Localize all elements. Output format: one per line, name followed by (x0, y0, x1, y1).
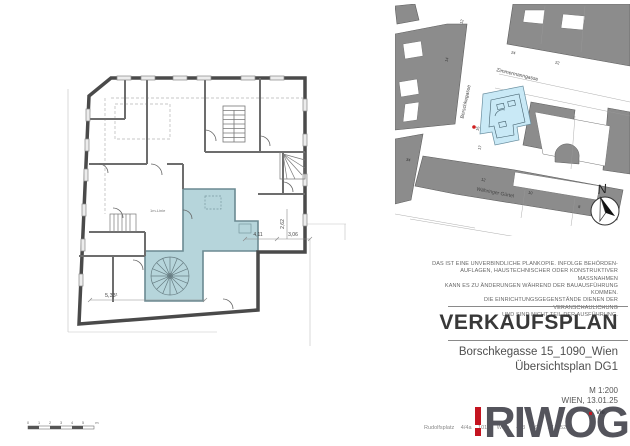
logo-fragment: Vie (596, 410, 605, 416)
plan-name: Übersichtsplan DG1 (438, 361, 618, 373)
site-plan: Borschkegasse Zimmermanngasse Währinger … (395, 4, 630, 236)
street-label-borschkegasse: Borschkegasse (460, 84, 473, 119)
disclaimer-line: DIE EINRICHTUNGSGEGENSTÄNDE DIENEN DER V… (430, 297, 618, 312)
svg-text:17: 17 (477, 144, 483, 150)
street-label-zimmermanngasse: Zimmermanngasse (496, 67, 539, 83)
address-line: Borschkegasse 15_1090_Wien (438, 346, 618, 358)
plan-sheet: 5,33¹ 4,11 3,06 2,62 1m-Linie 0 1 2 3 4 … (0, 0, 630, 446)
svg-text:1: 1 (38, 421, 40, 425)
divider-bottom (448, 340, 628, 341)
svg-text:12: 12 (459, 18, 465, 24)
scale-bar-unit: m (95, 421, 98, 425)
dim-label-262: 2,62 (280, 219, 286, 229)
disclaimer-line: KANN ES ZU ÄNDERUNGEN WÄHREND DER BAUAUS… (430, 283, 618, 298)
spiral-stair (151, 257, 189, 295)
scale-label: M 1:200 (438, 386, 618, 395)
north-label: N (596, 181, 608, 197)
svg-text:2: 2 (49, 421, 51, 425)
straight-stair (223, 106, 245, 142)
scale-bar: 0 1 2 3 4 5 m (27, 419, 103, 432)
divider-top (448, 306, 628, 307)
floor-plan: 5,33¹ 4,11 3,06 2,62 1m-Linie (55, 64, 355, 354)
logo-fragment-square (589, 412, 592, 415)
dim-label-533: 5,33¹ (105, 293, 118, 299)
disclaimer-line: DAS IST EINE UNVERBINDLICHE PLANKOPIE. I… (430, 261, 618, 268)
page-title: VERKAUFSPLAN (438, 311, 618, 335)
svg-text:3: 3 (60, 421, 62, 425)
svg-text:15: 15 (475, 125, 481, 131)
svg-text:0: 0 (27, 421, 29, 425)
svg-text:24: 24 (511, 50, 517, 56)
scale-bar-ticks: 0 1 2 3 4 5 m (27, 421, 99, 425)
svg-text:4: 4 (71, 421, 73, 425)
disclaimer-line: AUFLAGEN, HAUSTECHNISCHER ODER KONSTRUKT… (430, 268, 618, 283)
riwog-logo: RIWOG (450, 401, 628, 445)
dim-label-411: 4,11 (253, 232, 263, 238)
room-label: 1m-Linie (150, 208, 166, 213)
logo-text: RIWOG (484, 401, 628, 445)
dim-label-306: 3,06 (288, 232, 298, 238)
logo-mark-icon (475, 407, 481, 436)
svg-text:22: 22 (555, 60, 561, 66)
svg-text:5: 5 (82, 421, 84, 425)
